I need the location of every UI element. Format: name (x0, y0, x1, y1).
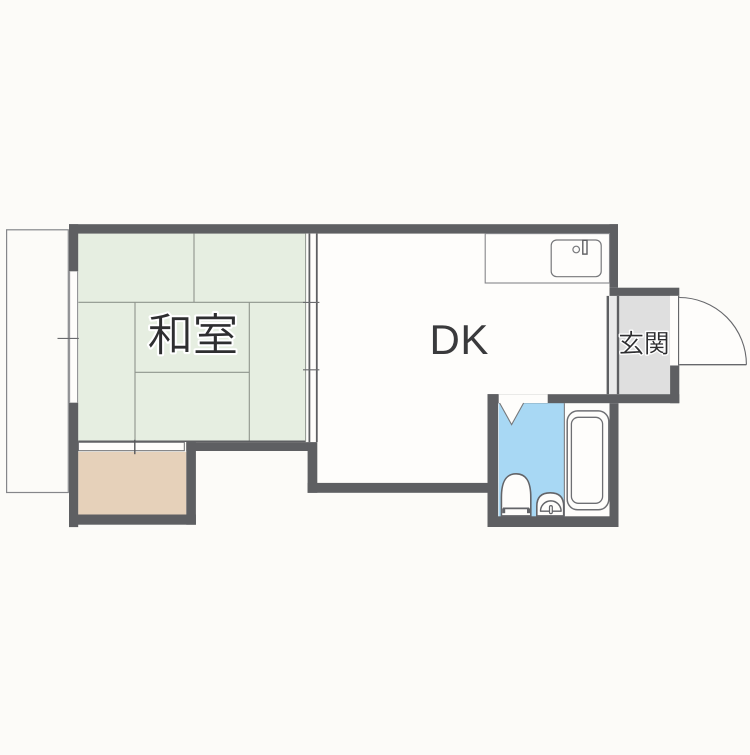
svg-text:DK: DK (430, 316, 489, 363)
